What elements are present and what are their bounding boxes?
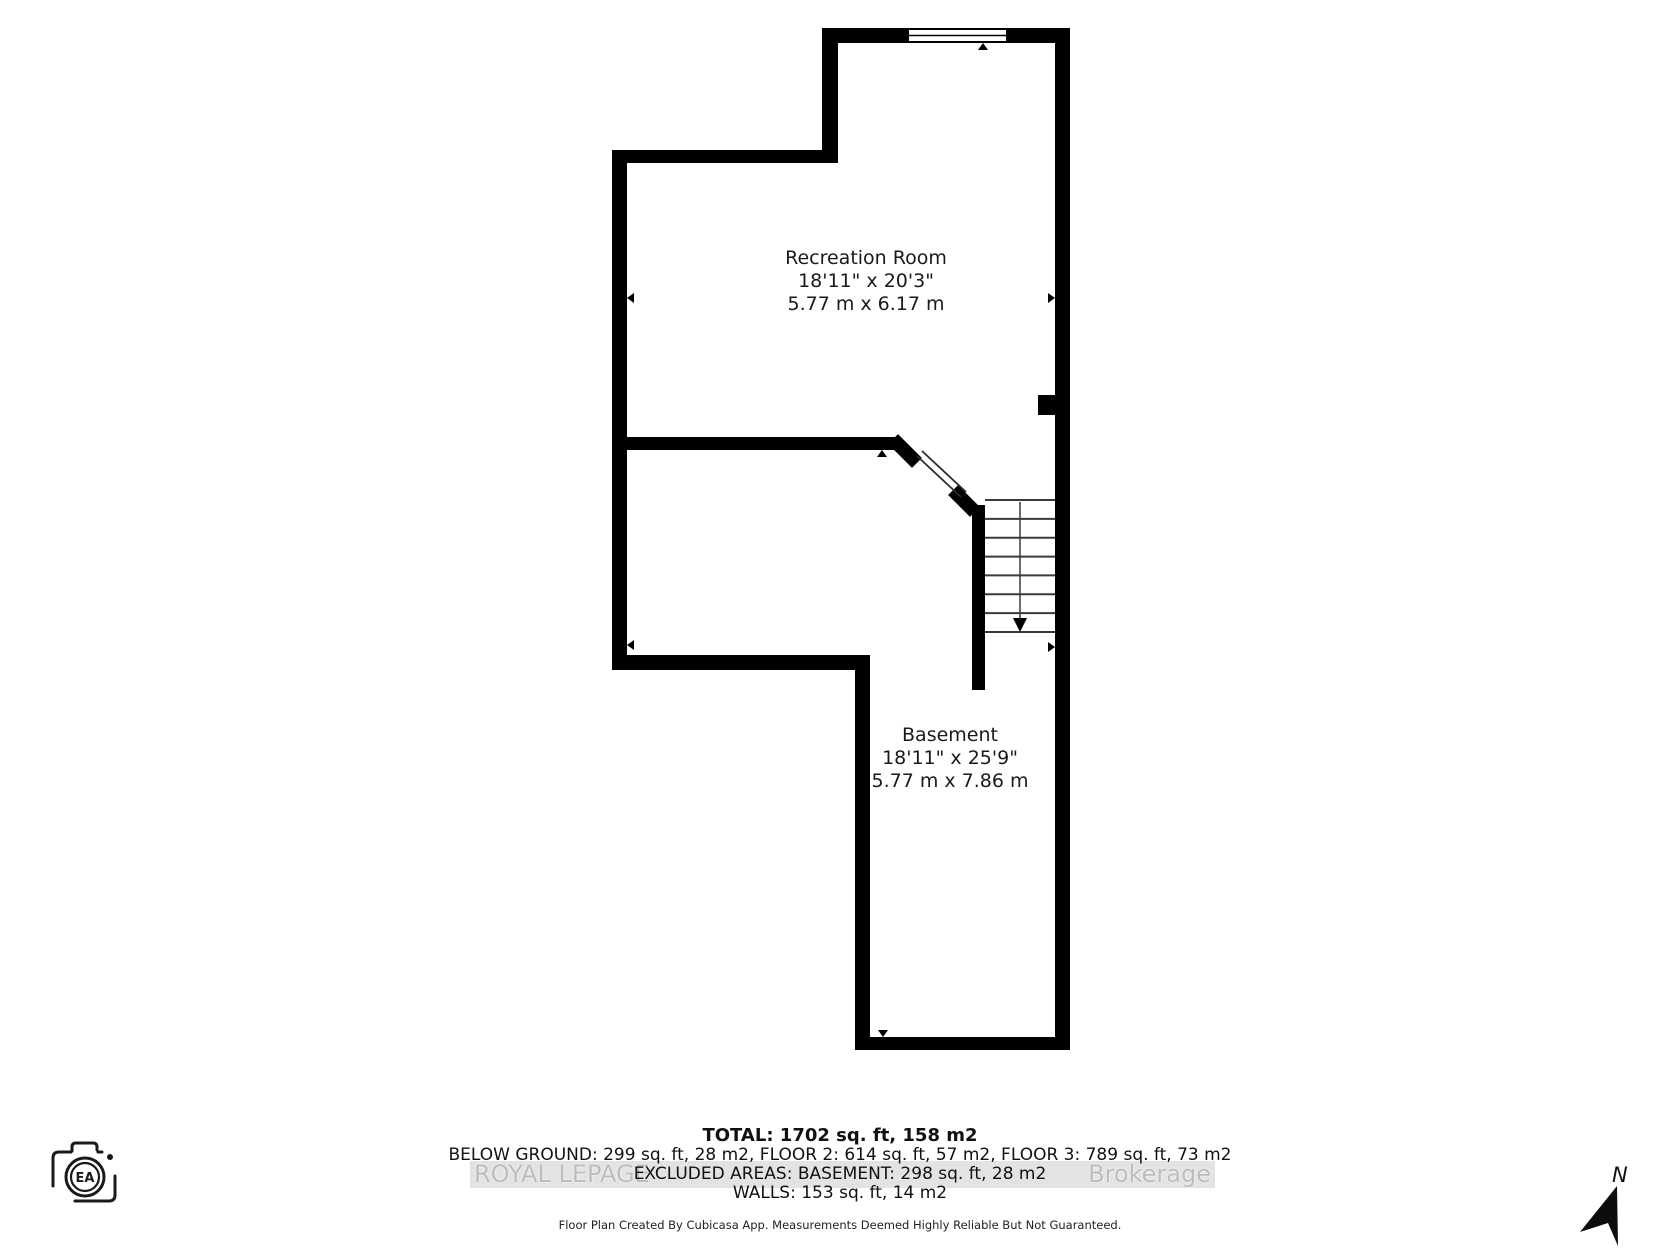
stairs-down-arrow-icon bbox=[1013, 618, 1027, 632]
floor-plan-page: Recreation Room 18'11" x 20'3" 5.77 m x … bbox=[0, 0, 1680, 1260]
summary-walls: WALLS: 153 sq. ft, 14 m2 bbox=[0, 1184, 1680, 1203]
marker-window bbox=[978, 43, 988, 50]
room-dims-imperial: 18'11" x 25'9" bbox=[800, 747, 1100, 770]
marker-bottom bbox=[878, 1030, 888, 1037]
summary-total: TOTAL: 1702 sq. ft, 158 m2 bbox=[0, 1126, 1680, 1146]
stairs-symbol bbox=[985, 500, 1055, 632]
room-label-recreation: Recreation Room 18'11" x 20'3" 5.77 m x … bbox=[696, 247, 1036, 316]
room-name: Recreation Room bbox=[696, 247, 1036, 270]
disclaimer-text: Floor Plan Created By Cubicasa App. Meas… bbox=[0, 1218, 1680, 1232]
north-arrow-icon: N bbox=[1568, 1156, 1640, 1260]
camera-label: EA bbox=[76, 1171, 95, 1186]
marker-right-upper bbox=[1048, 293, 1055, 303]
north-label: N bbox=[1612, 1163, 1628, 1187]
north-arrow-shape bbox=[1580, 1186, 1618, 1246]
walls-group bbox=[612, 28, 1070, 1050]
summary-excluded: EXCLUDED AREAS: BASEMENT: 298 sq. ft, 28… bbox=[0, 1165, 1680, 1184]
camera-icon-svg: EA bbox=[44, 1138, 128, 1210]
measurement-markers bbox=[627, 43, 1055, 1037]
camera-icon: EA bbox=[44, 1138, 128, 1214]
window-symbol bbox=[908, 29, 1007, 42]
room-name: Basement bbox=[800, 724, 1100, 747]
marker-left-lower bbox=[627, 640, 634, 650]
room-dims-metric: 5.77 m x 6.17 m bbox=[696, 293, 1036, 316]
camera-dot bbox=[107, 1154, 113, 1160]
area-summary: TOTAL: 1702 sq. ft, 158 m2 BELOW GROUND:… bbox=[0, 1126, 1680, 1203]
marker-right-lower bbox=[1048, 642, 1055, 652]
room-dims-imperial: 18'11" x 20'3" bbox=[696, 270, 1036, 293]
summary-below-ground: BELOW GROUND: 299 sq. ft, 28 m2, FLOOR 2… bbox=[0, 1146, 1680, 1165]
room-dims-metric: 5.77 m x 7.86 m bbox=[800, 770, 1100, 793]
marker-left-upper bbox=[627, 293, 634, 303]
marker-interior-wall bbox=[877, 450, 887, 457]
room-label-basement: Basement 18'11" x 25'9" 5.77 m x 7.86 m bbox=[800, 724, 1100, 793]
floor-plan-drawing bbox=[0, 0, 1680, 1260]
north-arrow-svg: N bbox=[1568, 1156, 1640, 1256]
